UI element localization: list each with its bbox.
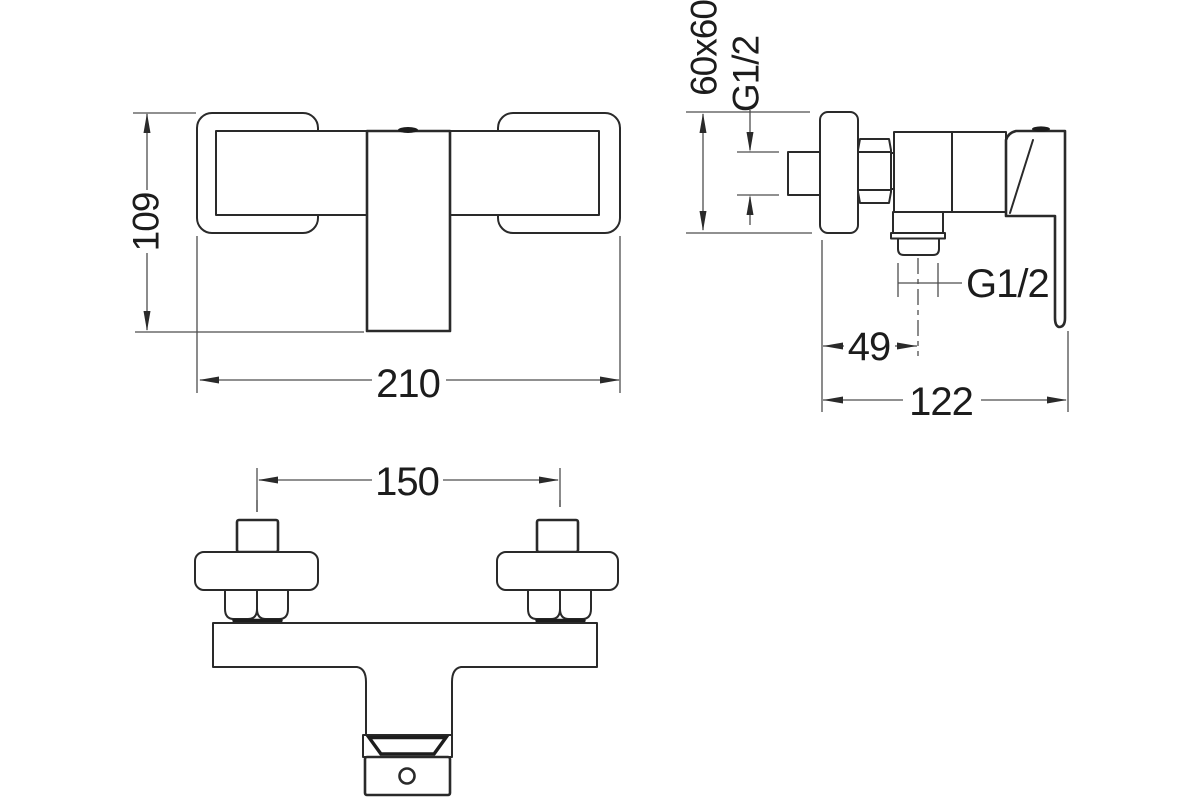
front-handle bbox=[367, 131, 450, 331]
top-left-nut-facet bbox=[225, 590, 257, 619]
side-hex-nut bbox=[858, 139, 891, 203]
drawing-canvas: 109 210 bbox=[0, 0, 1200, 800]
shower-mixer-drawing: 109 210 bbox=[0, 0, 1200, 800]
top-spout bbox=[363, 735, 452, 795]
top-right-flange bbox=[497, 552, 618, 590]
side-dim-outlet-offset: 49 bbox=[822, 240, 917, 412]
side-outlet-offset-label: 49 bbox=[848, 325, 891, 369]
top-body-bar bbox=[213, 623, 597, 735]
side-view: 60x60 G1/2 G1/2 49 bbox=[684, 0, 1069, 424]
top-left-nut-facet bbox=[257, 590, 288, 619]
side-depth-label: 122 bbox=[909, 380, 973, 424]
top-view: 150 bbox=[195, 460, 618, 795]
side-wall-plate bbox=[820, 112, 858, 233]
front-view: 109 210 bbox=[126, 113, 621, 406]
side-handle-indicator bbox=[1032, 126, 1050, 131]
top-left-connector bbox=[195, 500, 318, 621]
side-spout-block bbox=[893, 212, 943, 233]
side-plate-size-label: 60x60 bbox=[684, 0, 725, 96]
top-right-nut-facet bbox=[528, 590, 560, 619]
side-dim-inlet-thread: G1/2 bbox=[726, 36, 780, 225]
side-valve-body bbox=[894, 132, 1006, 212]
top-spout-hole bbox=[400, 769, 415, 784]
top-right-nut-facet bbox=[560, 590, 591, 619]
side-outlet-thread-callout: G1/2 bbox=[898, 262, 1049, 306]
top-right-connector bbox=[497, 500, 618, 621]
top-left-flange bbox=[195, 552, 318, 590]
top-dim-center-distance: 150 bbox=[257, 460, 560, 512]
top-left-supply-square bbox=[237, 520, 278, 552]
front-handle-indicator bbox=[398, 127, 418, 133]
side-spout-thread bbox=[898, 239, 939, 256]
top-right-supply-square bbox=[537, 520, 578, 552]
side-dim-plate: 60x60 bbox=[684, 0, 813, 233]
side-outlet-thread-label: G1/2 bbox=[966, 262, 1049, 306]
top-center-distance-label: 150 bbox=[375, 460, 439, 504]
side-supply-connector bbox=[788, 152, 820, 195]
side-inlet-thread-label: G1/2 bbox=[726, 36, 767, 112]
front-height-label: 109 bbox=[126, 193, 167, 252]
front-width-label: 210 bbox=[376, 362, 440, 406]
